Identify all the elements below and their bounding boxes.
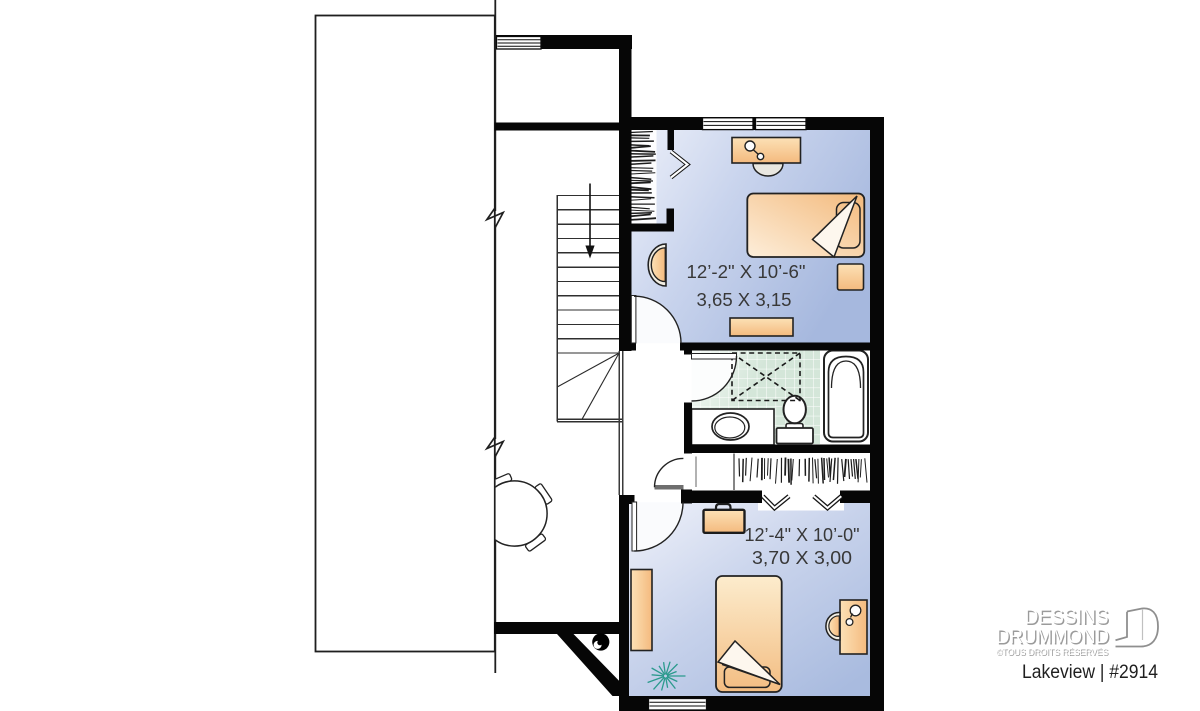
- svg-text:DRUMMOND: DRUMMOND: [996, 625, 1109, 648]
- svg-text:3,65 X 3,15: 3,65 X 3,15: [697, 290, 792, 310]
- svg-text:Lakeview | #2914: Lakeview | #2914: [1022, 662, 1158, 683]
- svg-text:12’-2" X 10’-6": 12’-2" X 10’-6": [687, 262, 806, 282]
- svg-text:3,70 X 3,00: 3,70 X 3,00: [752, 548, 852, 568]
- svg-text:12’-4" X 10’-0": 12’-4" X 10’-0": [745, 525, 860, 545]
- svg-text:©TOUS DROITS RÉSERVÉS: ©TOUS DROITS RÉSERVÉS: [996, 647, 1108, 657]
